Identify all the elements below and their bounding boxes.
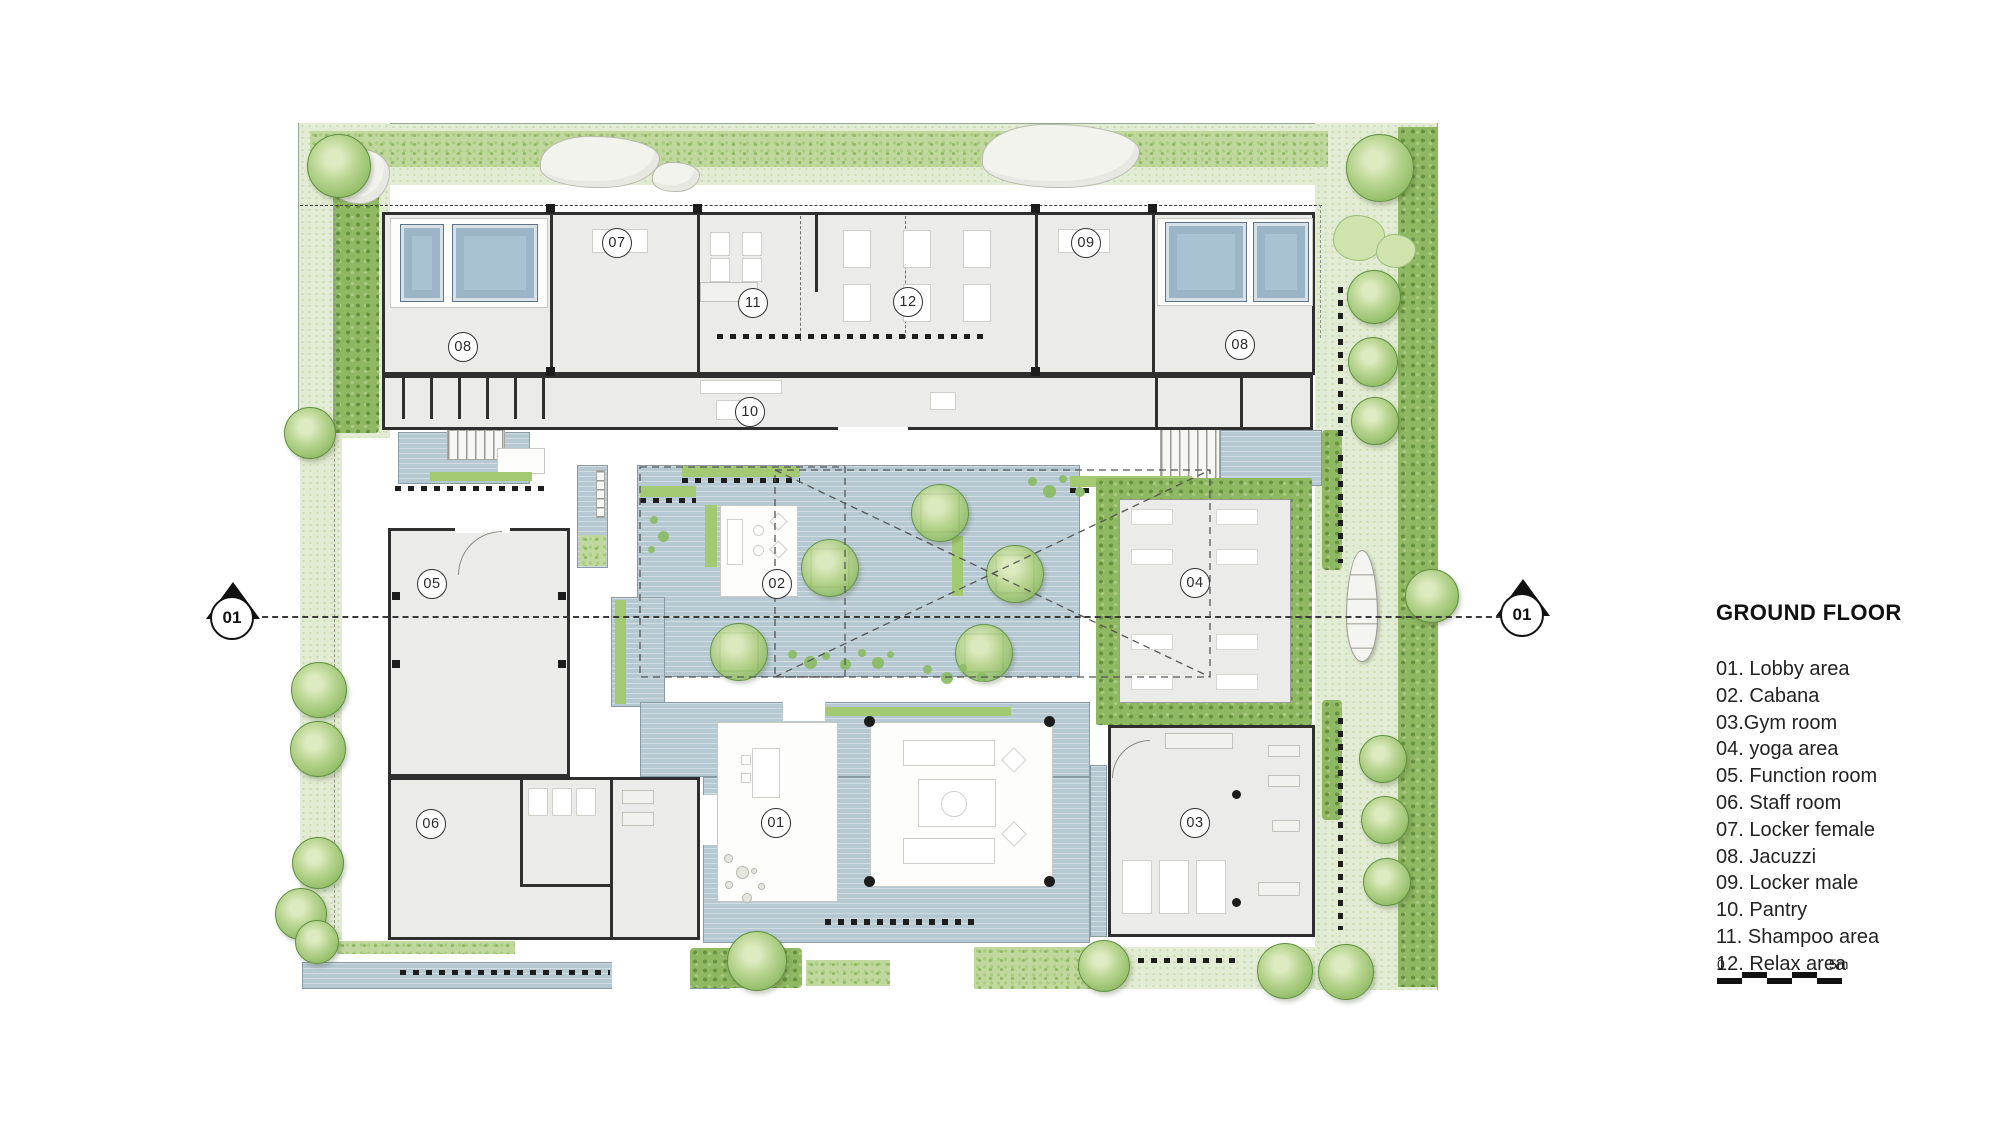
pond-gym-edge <box>1090 765 1107 937</box>
column-marker <box>1232 898 1241 907</box>
walkway-bridge <box>783 701 825 721</box>
room-label-relax: 12 <box>893 287 923 317</box>
interior-wall <box>520 884 613 887</box>
yoga-mat <box>1131 634 1173 650</box>
tree <box>1347 270 1401 324</box>
treadmill <box>1196 860 1226 914</box>
shampoo-chair <box>710 232 730 256</box>
room-label-jacuzzi-left: 08 <box>448 332 478 362</box>
yoga-mat <box>1216 674 1258 690</box>
pavilion-column <box>1044 716 1055 727</box>
relax-lounger <box>963 284 991 322</box>
lily-pad <box>1043 485 1056 498</box>
stall-wall <box>1155 375 1158 430</box>
legend-item: 08. Jacuzzi <box>1716 844 1996 871</box>
channel-planting <box>580 535 606 566</box>
interior-wall <box>1152 212 1155 375</box>
scale-segment <box>1742 972 1767 978</box>
stall-wall <box>402 377 405 419</box>
hedge-strip-vertical <box>705 505 717 567</box>
room-label-lobby: 01 <box>761 808 791 838</box>
cabana-stool <box>753 545 764 556</box>
tree <box>1346 134 1414 202</box>
legend-item: 07. Locker female <box>1716 817 1996 844</box>
sofa <box>903 740 995 766</box>
tick-fence <box>1138 958 1238 963</box>
gym-equipment <box>1268 745 1300 757</box>
tree <box>801 539 859 597</box>
legend-item: 09. Locker male <box>1716 870 1996 897</box>
column-marker <box>558 592 566 600</box>
lily-pad <box>959 664 967 672</box>
column-marker <box>546 367 555 376</box>
walkway-connector <box>700 795 717 845</box>
cabana-stool <box>753 525 764 536</box>
stall-wall <box>1240 375 1243 430</box>
tree <box>295 920 339 964</box>
pantry-counter <box>700 380 782 394</box>
tree <box>291 662 347 718</box>
pavilion-column <box>1044 876 1055 887</box>
relax-lounger <box>843 230 871 268</box>
decor-stone <box>736 866 749 879</box>
floor-plan-page: 01 01 01 02 03 04 05 06 07 08 08 09 10 1… <box>0 0 2000 1125</box>
entry-path <box>890 947 974 990</box>
cabana-lounger <box>727 519 743 565</box>
roof-projection-line-left <box>334 208 335 938</box>
scale-segment <box>1792 972 1817 978</box>
stall-wall <box>514 377 517 419</box>
planting-strip <box>430 472 532 481</box>
hedge-strip <box>640 486 696 497</box>
yoga-mat <box>1131 549 1173 565</box>
scale-start-label: 0 <box>1717 956 1725 972</box>
scale-end-label: 5m <box>1829 956 1848 972</box>
relax-lounger <box>903 230 931 268</box>
column-marker <box>1031 204 1040 213</box>
hedge-strip-bottom <box>337 941 515 954</box>
hedge-ticks <box>640 498 696 503</box>
section-marker-label: 01 <box>223 608 242 628</box>
column-marker <box>546 204 555 213</box>
toilet <box>576 788 596 816</box>
roof-projection-line-right <box>1320 205 1321 338</box>
landscape-rock <box>652 162 700 192</box>
tree <box>290 721 346 777</box>
room-label-staff-room: 06 <box>416 809 446 839</box>
lily-pad <box>658 531 669 542</box>
lily-pad <box>650 516 658 524</box>
legend-item: 06. Staff room <box>1716 790 1996 817</box>
channel-rungs <box>596 470 605 518</box>
tree <box>1351 397 1399 445</box>
room-label-pantry: 10 <box>735 397 765 427</box>
lily-pad <box>941 672 953 684</box>
decor-stone <box>751 868 757 874</box>
tree <box>1257 943 1313 999</box>
room-label-jacuzzi-right: 08 <box>1225 330 1255 360</box>
legend-item: 03.Gym room <box>1716 710 1996 737</box>
lily-pad <box>977 672 987 682</box>
column-marker <box>1031 367 1040 376</box>
tick-fence <box>395 486 547 491</box>
decor-stone <box>758 883 765 890</box>
lily-pad <box>840 659 851 670</box>
sofa <box>903 838 995 864</box>
yoga-mat <box>1216 549 1258 565</box>
tree <box>1405 569 1459 623</box>
tree <box>710 623 768 681</box>
decor-stone <box>724 854 733 863</box>
relax-lounger <box>843 284 871 322</box>
screen-ticks <box>717 334 989 339</box>
stall-wall <box>458 377 461 419</box>
roof-projection-line-top <box>300 205 1322 206</box>
lily-pad <box>822 652 830 660</box>
treadmill <box>1159 860 1189 914</box>
section-marker-left: 01 <box>206 582 260 642</box>
tree <box>1078 940 1130 992</box>
section-marker-bubble: 01 <box>1500 593 1544 637</box>
tick-fence-vertical <box>1338 455 1343 563</box>
scale-segment <box>1767 978 1792 984</box>
stall-wall <box>430 377 433 419</box>
legend-item: 10. Pantry <box>1716 897 1996 924</box>
interior-wall <box>610 777 613 940</box>
interior-wall <box>520 777 523 887</box>
tree <box>911 484 969 542</box>
column-marker <box>1148 204 1157 213</box>
lily-pad <box>923 665 932 674</box>
entry-path <box>612 940 690 990</box>
yoga-room <box>1119 499 1291 703</box>
treadmill <box>1122 860 1152 914</box>
tick-fence <box>400 970 610 975</box>
entry-opening <box>838 427 908 433</box>
toilet <box>552 788 572 816</box>
yoga-mat <box>1216 634 1258 650</box>
interior-wall <box>815 212 818 292</box>
pavilion-column <box>864 716 875 727</box>
gym-equipment <box>1272 820 1300 832</box>
legend-item: 11. Shampoo area <box>1716 924 1996 951</box>
yoga-mat <box>1216 509 1258 525</box>
site-plan-drawing: 01 01 01 02 03 04 05 06 07 08 08 09 10 1… <box>0 0 2000 1125</box>
legend: GROUND FLOOR 01. Lobby area 02. Cabana 0… <box>1716 600 1996 978</box>
tree <box>727 931 787 991</box>
lily-pad <box>887 651 894 658</box>
jacuzzi-pool <box>452 224 538 302</box>
legend-item: 05. Function room <box>1716 763 1996 790</box>
legend-list: 01. Lobby area 02. Cabana 03.Gym room 04… <box>1716 656 1996 978</box>
reception-chair <box>741 755 751 765</box>
lily-pad <box>1028 477 1037 486</box>
room-label-function-room: 05 <box>417 569 447 599</box>
hedge-top-row <box>310 131 1328 167</box>
toilet <box>528 788 548 816</box>
lily-pad <box>804 656 817 669</box>
planting-strip <box>825 707 1011 716</box>
lily-pad <box>1075 487 1085 497</box>
tree <box>1359 735 1407 783</box>
hedge-strip-vertical <box>952 536 963 596</box>
shampoo-chair <box>742 258 762 282</box>
sink-counter <box>622 790 654 804</box>
yoga-mat <box>1131 674 1173 690</box>
lily-pad <box>872 657 884 669</box>
legend-item: 02. Cabana <box>1716 683 1996 710</box>
building-service-band <box>382 375 1313 430</box>
table-decor <box>941 791 967 817</box>
tick-fence-vertical <box>1338 287 1343 437</box>
lily-pad <box>1059 475 1067 483</box>
shampoo-chair <box>742 232 762 256</box>
gym-equipment <box>1258 882 1300 896</box>
gym-bench <box>1165 733 1233 749</box>
scale-segment <box>1717 978 1742 984</box>
tree <box>292 837 344 889</box>
room-label-locker-male: 09 <box>1071 228 1101 258</box>
tree <box>1361 796 1409 844</box>
room-label-gym: 03 <box>1180 808 1210 838</box>
shampoo-chair <box>710 258 730 282</box>
room-label-locker-female: 07 <box>602 228 632 258</box>
glass-partition <box>800 216 801 341</box>
lily-pad <box>648 546 655 553</box>
column-marker <box>392 592 400 600</box>
jacuzzi-pool <box>1165 222 1247 302</box>
room-label-yoga: 04 <box>1180 568 1210 598</box>
scale-segment <box>1817 978 1842 984</box>
tree <box>1363 858 1411 906</box>
tree <box>307 134 371 198</box>
column-marker <box>693 204 702 213</box>
section-marker-label: 01 <box>1513 605 1532 625</box>
scale-bar: 0 5m <box>1717 956 1857 986</box>
section-line <box>232 616 1522 618</box>
interior-wall <box>1035 212 1038 375</box>
room-label-cabana: 02 <box>762 569 792 599</box>
tree <box>986 545 1044 603</box>
legend-title: GROUND FLOOR <box>1716 600 1996 626</box>
tree <box>1348 337 1398 387</box>
jacuzzi-pool <box>1253 222 1309 302</box>
lily-pad <box>858 649 866 657</box>
tree <box>1318 944 1374 1000</box>
column-marker <box>1232 790 1241 799</box>
hedge-ticks <box>682 478 800 483</box>
legend-item: 04. yoga area <box>1716 736 1996 763</box>
hedge-ticks <box>825 919 975 925</box>
stall-wall <box>486 377 489 419</box>
pavilion-column <box>864 876 875 887</box>
tree <box>284 407 336 459</box>
sink-counter <box>622 812 654 826</box>
yoga-mat <box>1131 509 1173 525</box>
column-marker <box>392 660 400 668</box>
reception-desk <box>752 748 780 798</box>
deck-left <box>497 448 545 474</box>
relax-lounger <box>963 230 991 268</box>
legend-item: 01. Lobby area <box>1716 656 1996 683</box>
interior-wall <box>550 212 553 375</box>
massage-chair <box>930 392 956 410</box>
gym-equipment <box>1268 775 1300 787</box>
bottom-hedge <box>974 947 1094 989</box>
decor-stone <box>742 893 752 903</box>
room-label-shampoo: 11 <box>738 288 768 318</box>
section-marker-bubble: 01 <box>210 596 254 640</box>
bottom-hedge <box>806 960 890 986</box>
jacuzzi-pool <box>400 224 444 302</box>
hedge-strip <box>682 466 800 477</box>
reception-chair <box>741 773 751 783</box>
decor-stone <box>725 881 733 889</box>
lily-pad <box>788 650 797 659</box>
stall-wall <box>542 377 545 419</box>
section-marker-right: 01 <box>1496 579 1550 639</box>
tick-fence-vertical <box>1338 718 1343 930</box>
column-marker <box>558 660 566 668</box>
